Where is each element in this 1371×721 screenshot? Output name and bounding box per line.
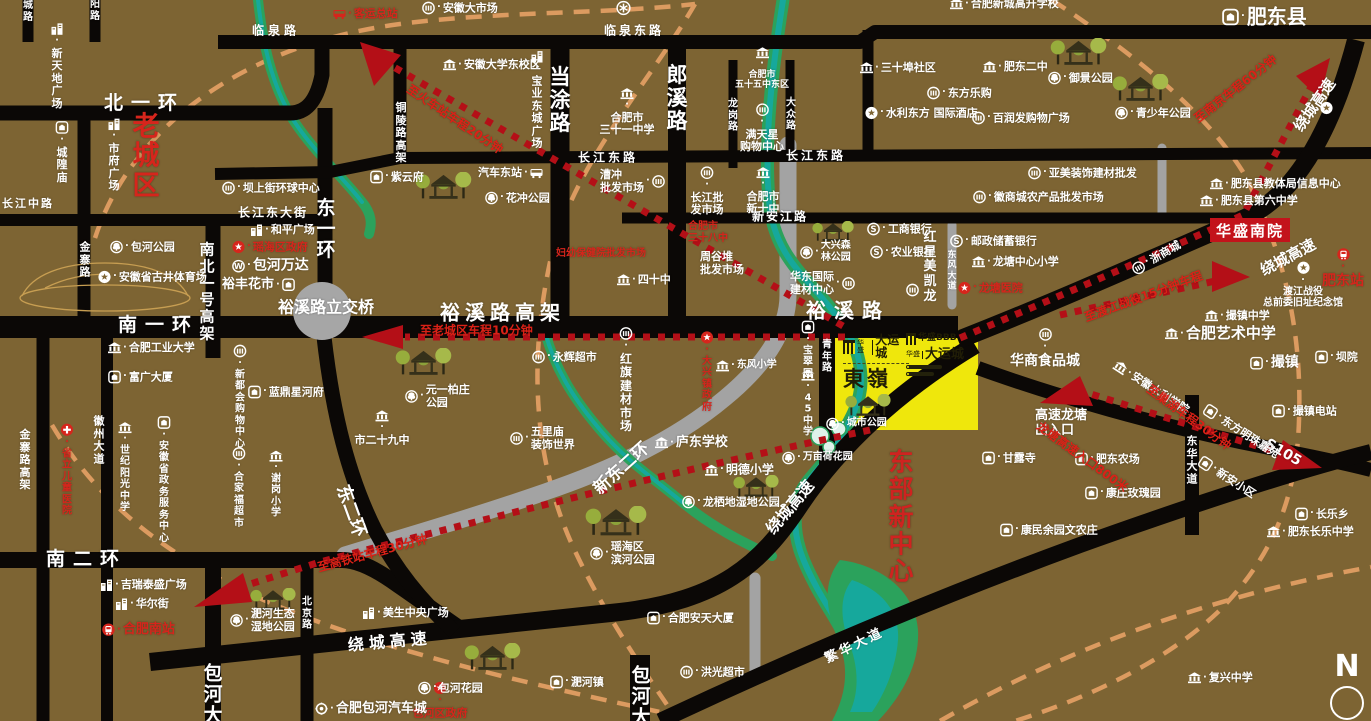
park-icon [418,682,431,695]
label-dot: · [535,64,539,75]
label-dot: · [247,242,251,253]
route-label: 至老城区车程10分钟 [420,325,533,338]
place-label: ·撮镇中学 [1205,310,1270,322]
label-dot: · [130,599,134,610]
inst-icon [716,360,729,371]
inst-icon [983,61,996,72]
market-icon [422,2,435,15]
inst-icon [950,0,963,10]
road-label: 长江中路 [2,198,54,210]
place-label: ·肥东县第六中学 [1200,195,1298,207]
town-icon [802,321,815,334]
place-label: ·新都会购物中心 [234,345,247,450]
market-icon [222,182,235,195]
road-label: 东华大道 [1187,435,1198,484]
place-label: ·长乐乡 [1295,508,1349,521]
road-label: 南二环 [46,550,127,570]
label-dot: · [438,695,442,706]
label-dot: · [1015,525,1019,536]
star-icon [98,271,111,284]
label-dot: · [1043,342,1047,353]
label-dot: · [1287,406,1291,417]
wanda-icon: W [232,260,245,273]
road-label: 南一环 [118,316,199,336]
place-label: ·龙塘医院 [958,282,1023,295]
svg-text:S: S [870,225,876,235]
place-label: ·安徽省政务服务中心 [158,416,171,544]
place-label: ·45中学 [802,370,815,439]
place-label: ·紫云府 [370,171,424,184]
label-dot: · [1130,108,1134,119]
place-label [616,1,631,16]
bldg-icon [100,579,113,591]
divider [843,363,909,364]
road-label: 东一环 [316,199,335,261]
label-dot: · [1265,358,1269,369]
road-label: 南北一号高架 [199,242,214,342]
road-label: 龙岗路 [728,99,738,133]
road-label: 金寨路高架 [20,429,31,491]
inst-icon [443,59,456,70]
place-label: ·合肥市新十中 [747,167,780,215]
inst-icon [757,167,770,178]
place-label: ·宝业东城广场 [531,51,544,150]
place-label: ·华商食品城 [1010,328,1080,368]
label-dot: · [1282,527,1286,538]
label-dot: · [330,704,334,715]
label-dot: · [670,438,674,449]
place-label: ·瑶海区政府 [232,241,308,254]
label-dot: · [125,242,129,253]
label-dot: · [965,0,969,9]
label-dot: · [988,192,992,203]
park-icon [1115,107,1128,120]
bldg-icon [51,23,64,35]
label-dot: · [237,461,241,472]
place-label: ·万亩荷花园 [782,452,853,465]
road-label: 裕溪路高架 [440,303,565,324]
place-label: ·五里庙装饰世界 [510,426,575,450]
place-label: 红星美凯龙 [923,231,936,303]
label-dot: · [377,608,381,619]
road-label: 东风大道 [947,252,956,293]
place-label: ·淝河镇 [550,676,604,689]
building-logo-icon [843,340,855,354]
inst-icon [376,410,389,421]
label-dot: · [720,465,724,476]
label-dot: · [1341,262,1345,273]
label-dot: · [437,3,441,14]
town-icon [248,386,261,399]
place-label [1320,102,1333,115]
label-dot: · [123,434,127,445]
bldg-icon [362,607,375,619]
label-dot: · [60,135,64,146]
place-label: ·东方乐购 [927,87,992,100]
place-label: W·包河万达 [232,259,309,274]
huasheng-south-annex-box: 华盛南院 [1210,218,1290,242]
place-label: ·肥东县教体局信息中心 [1210,178,1341,190]
market-icon [842,277,855,290]
label-dot: · [806,335,810,346]
place-label: ·坝上街环球中心 [222,182,320,195]
place-label: ·市府广场 [108,118,121,192]
place-label: ·富广大厦 [108,371,173,384]
place-label: ·包河花园 [418,682,483,695]
inst-icon [1267,526,1280,537]
place-label: ·合肥包河汽车城 [315,702,427,716]
place-label: ·长江批发市场 [691,166,724,216]
tagline-pill [906,365,942,369]
label-dot: · [815,247,819,258]
map-root: 华盛 大运城 東嶺 华盛BBB 华盛 大运城 华盛南院 N 临泉路临泉东路北一环… [0,0,1371,721]
label-dot: · [1100,488,1104,499]
place-label: ·龙塘中心小学 [972,256,1059,268]
road-label: 临泉路 [252,25,300,38]
inst-icon [972,256,985,267]
road-label: 裕溪路立交桥 [278,300,374,317]
label-dot: · [65,437,69,448]
brand-main: 大运城 [875,334,909,360]
market-icon [973,191,986,204]
road-label: 徽州大道 [94,415,105,464]
label-dot: · [841,419,845,430]
label-dot: · [123,343,127,354]
place-label: ·吉瑞泰盛广场 [100,579,187,591]
label-dot: · [525,433,529,444]
market-icon [620,327,633,340]
label-dot: · [458,60,462,71]
town-icon [1000,524,1013,537]
property-complex-dongling: 华盛 大运城 東嶺 [843,334,909,390]
place-label: ·亚美装饰建材批发 [1028,167,1137,180]
inst-icon [755,47,768,58]
label-dot: · [117,625,121,636]
inst-icon [1210,178,1223,189]
place-label: ·御景公园 [1048,72,1113,85]
label-dot: · [245,615,249,626]
inst-icon [1188,672,1201,683]
label-dot: · [547,352,551,363]
place-label: ·甘露寺 [982,452,1036,465]
park-icon [110,241,123,254]
road-label: 阳路 [90,0,100,22]
market-icon [532,351,545,364]
place-label: ·谢岗小学 [270,451,283,520]
gear-icon [315,702,328,715]
place-label: ·元一柏庄公园 [405,384,470,408]
place-label: ·康民余园文农庄 [1000,524,1098,537]
town-icon [1085,487,1098,500]
park-icon [782,452,795,465]
road-label: 长江东路 [786,150,846,163]
label-dot: · [247,261,251,272]
town-icon [1222,9,1239,26]
label-dot: · [238,359,242,370]
market-icon [756,103,769,116]
label-dot: · [662,613,666,624]
label-dot: · [997,453,1001,464]
place-label: ·大兴森林公园 [800,241,851,263]
town-icon [647,612,660,625]
label-dot: · [1241,12,1245,23]
town-icon [1250,357,1263,370]
road-label: 长江东路 [578,152,638,165]
label-dot: · [112,131,116,142]
place-label: ·合肥市三十一中学 [600,88,655,136]
compass-ring [1330,686,1364,720]
label-dot: · [760,117,764,128]
road-label: 青年路 [822,340,832,374]
place-label: ·撮镇电站 [1272,405,1337,418]
brand-main: 大运城 [925,348,964,362]
place-label: S·工商银行 [867,223,932,236]
market-icon [1028,167,1041,180]
label-dot: · [123,372,127,383]
hefei-south-station: ·合肥南站 [102,623,175,637]
market-icon [510,432,523,445]
label-dot: · [1301,275,1305,286]
brand-small: 华盛 [906,351,923,359]
bldg-icon [531,51,544,63]
label-dot: · [987,113,991,124]
park-icon [800,246,813,259]
place-label: ·城市公园 [826,418,887,431]
place-label: ·世纪阳光中学 [119,422,132,514]
place-label: ·百润发购物广场 [972,112,1070,125]
place-label: ·明德小学 [705,464,774,477]
market-icon [972,112,985,125]
label-dot: · [265,225,269,236]
inst-icon [655,437,668,448]
place-label: ·龙栖地湿地公园 [682,496,780,509]
park-icon [590,547,603,560]
star-icon [865,107,878,120]
market-icon [233,447,246,460]
label-dot: · [761,179,765,190]
feidong-station: ·肥东站 [1322,248,1364,288]
inst-icon [621,88,634,99]
label-dot: · [276,280,280,291]
place-label: 华东国际建材中心· [790,271,855,295]
place-label: ·安徽大市场 [422,2,498,15]
market-icon [906,284,919,297]
place-label: ·永辉超市 [532,351,597,364]
inst-icon [617,274,630,285]
town-icon [108,371,121,384]
place-label: ·瑶海区滨河公园 [590,541,655,565]
bus-icon [333,9,346,19]
label-dot: · [420,391,424,402]
place-label: ·华尔街 [115,598,169,610]
place-label: ·新天地广场 [51,23,64,109]
town-icon [158,416,171,429]
label-dot: · [880,108,884,119]
place-label: ·安徽大学东校区 [443,59,541,71]
park-icon [485,192,498,205]
label-dot: · [55,36,59,47]
inst-icon [270,451,283,462]
label-dot: · [806,382,810,393]
label-dot: · [1215,196,1219,207]
east-new-center-label: 东部新中心 [888,449,913,584]
label-dot: · [705,180,709,191]
label-dot: · [113,272,117,283]
market-icon [652,175,665,188]
road-label: 包河大道 [203,665,222,721]
place-label: ·合肥新城高升学校 [950,0,1059,10]
label-dot: · [1180,329,1184,340]
compass-north: N [1330,652,1364,720]
road-label: 包河大道 [631,667,650,721]
compass-letter: N [1330,652,1364,682]
label-dot: · [965,236,969,247]
brand-logo: 华盛BBB [918,334,957,344]
market-icon [680,666,693,679]
bank-icon: S [870,246,883,259]
label-dot: · [1043,168,1047,179]
gov-icon [232,241,245,254]
bldg-icon [250,224,263,236]
place-label: ·洪光超市 [680,666,745,679]
place-label: ·合家福超市 [233,447,246,529]
bldg-icon [115,598,128,610]
label-dot: · [380,423,384,434]
market-icon [234,345,247,358]
market-icon [701,166,714,179]
town-icon [56,121,69,134]
label-dot: · [882,224,886,235]
label-dot: · [237,183,241,194]
park-icon [826,418,839,431]
place-label: ·肥东长乐中学 [1267,526,1354,538]
inst-icon [108,342,121,353]
road-label: 郎溪路 [667,64,688,132]
label-dot: · [1310,509,1314,520]
road-label: 铜陵路高架 [396,102,407,164]
tagline-pill [906,372,934,376]
inst-icon [1200,195,1213,206]
place-label: S·邮政储蓄银行 [950,235,1037,248]
label-dot: · [697,497,701,508]
place-label: ·红旗建材市场 [620,327,633,433]
building-logo-icon [906,333,916,345]
bank-icon: S [950,235,963,248]
place-label: ·和平广场 [250,224,315,236]
road-label: 北京路 [302,597,312,631]
market-icon [1039,328,1052,341]
inst-icon [119,422,132,433]
bus-terminal: ·客运总站 [333,8,398,20]
label-dot: · [433,683,437,694]
label-dot: · [565,677,569,688]
place-label: ·省立儿童医院 [61,423,74,517]
place-label [906,284,919,297]
label-dot: · [760,59,764,70]
park-icon [1048,72,1061,85]
place-label: ·坝院 [1315,351,1358,364]
feidong-county: ·肥东县 [1222,7,1307,28]
bus-icon [530,168,543,178]
label-dot: · [973,283,977,294]
label-dot: · [987,257,991,268]
label-dot: · [162,430,166,441]
place-label: 漕冲批发市场· [600,169,665,193]
place-label: ·美生中央广场 [362,607,449,619]
inst-icon [802,370,815,381]
train-icon [1337,248,1350,261]
place-label: ·庐东学校 [655,436,728,450]
med-icon [61,423,74,436]
gov-icon [701,331,714,344]
label-dot: · [836,278,840,289]
label-dot: · [624,341,628,352]
road-label: 当涂路 [550,66,571,134]
place-label: ·淝河生态湿地公园 [230,608,295,632]
svg-text:S: S [953,237,959,247]
label-dot: · [500,193,504,204]
park-icon [405,390,418,403]
town-icon [282,278,295,291]
place-label: ·撮镇 [1250,356,1299,371]
place-label: ·合肥安天大厦 [647,612,734,625]
place-label: ·合肥市五十五中东区 [735,47,789,91]
place-label: ·蓝鼎星河府 [248,386,324,399]
place-label: ·合肥工业大学 [108,342,195,354]
label-dot: · [646,176,650,187]
label-dot: · [605,548,609,559]
town-icon [550,676,563,689]
place-label: 妇幼保健院批发市场 [556,249,646,260]
place-label: 裕丰花市· [222,278,295,292]
place-label: ·安徽省古井体育场 [98,271,207,284]
place-label: 周谷堆批发市场 [700,251,744,275]
town-icon [1315,351,1328,364]
label-dot: · [731,361,735,372]
label-dot: · [625,100,629,111]
park-icon [682,496,695,509]
gov-icon [958,282,971,295]
place-label: ·四十中 [617,274,671,286]
place-label: ·合肥艺术中学 [1165,326,1276,342]
place-label: ·大兴镇政府 [701,331,714,413]
market-icon [927,87,940,100]
bldg-icon [108,118,121,130]
label-dot: · [1330,352,1334,363]
label-dot: · [695,667,699,678]
metro-icon [616,1,631,16]
inst-icon [1205,310,1218,321]
place-label: ·包河公园 [110,241,175,254]
label-dot: · [998,62,1002,73]
town-icon [1295,508,1308,521]
place-label: 汽车东站· [478,167,543,179]
svg-text:W: W [234,261,243,271]
place-label: ·青少年公园 [1115,107,1191,120]
label-dot: · [385,172,389,183]
inst-icon [1165,328,1178,339]
svg-text:S: S [873,248,879,258]
inst-icon [860,62,873,73]
star-icon [1297,261,1310,274]
place-label: ·肥东二中 [983,61,1048,73]
road-label: 长江东大街 [238,207,308,220]
road-label: 金寨路 [80,242,91,279]
road-label: 裕溪路 [806,301,890,322]
property-complex-dayuncheng: 华盛BBB 华盛 大运城 [906,333,976,376]
train-icon [102,623,115,636]
place-label: ·满天星购物中心 [740,103,784,153]
